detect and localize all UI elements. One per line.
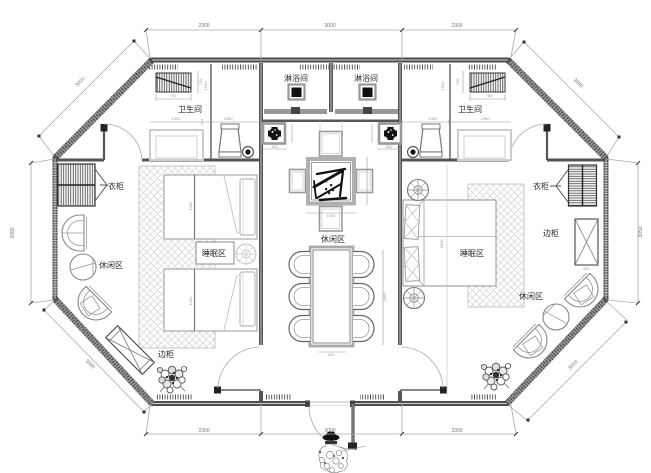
svg-text:600: 600: [272, 144, 279, 149]
svg-text:1500: 1500: [203, 81, 208, 91]
svg-text:卫生间: 卫生间: [458, 104, 482, 114]
svg-text:700: 700: [455, 78, 460, 85]
svg-text:1800: 1800: [382, 292, 387, 302]
svg-text:2300: 2300: [198, 428, 209, 434]
svg-text:3000: 3000: [324, 23, 335, 29]
svg-text:睡眠区: 睡眠区: [202, 249, 226, 258]
svg-text:3000: 3000: [324, 428, 335, 434]
svg-text:衣柜: 衣柜: [108, 181, 124, 191]
svg-text:1300: 1300: [481, 116, 491, 121]
svg-text:1300: 1300: [172, 116, 182, 121]
svg-text:淋浴间: 淋浴间: [354, 73, 378, 83]
svg-text:600: 600: [386, 144, 393, 149]
svg-text:睡眠区: 睡眠区: [460, 249, 484, 258]
svg-text:2300: 2300: [198, 23, 209, 29]
svg-text:边柜: 边柜: [543, 228, 559, 238]
svg-text:700: 700: [198, 78, 203, 85]
svg-text:1350: 1350: [429, 116, 439, 121]
svg-text:3050: 3050: [10, 227, 16, 238]
svg-text:1200: 1200: [188, 201, 193, 211]
svg-text:1000: 1000: [327, 213, 337, 218]
svg-text:600: 600: [328, 352, 335, 357]
svg-text:休闲区: 休闲区: [321, 234, 345, 244]
svg-text:2300: 2300: [451, 23, 462, 29]
svg-text:卫生间: 卫生间: [178, 104, 202, 114]
svg-text:3050: 3050: [638, 226, 644, 237]
svg-text:边柜: 边柜: [158, 349, 174, 359]
svg-text:1800: 1800: [439, 239, 444, 249]
svg-text:750: 750: [170, 93, 177, 98]
svg-text:休闲区: 休闲区: [519, 291, 543, 301]
svg-text:1200: 1200: [188, 296, 193, 306]
svg-text:750: 750: [486, 93, 493, 98]
svg-text:淋浴间: 淋浴间: [284, 73, 308, 83]
svg-text:休闲区: 休闲区: [99, 260, 123, 270]
svg-text:1350: 1350: [224, 116, 234, 121]
svg-text:1500: 1500: [440, 81, 445, 91]
svg-text:2300: 2300: [451, 428, 462, 434]
svg-text:400: 400: [583, 266, 590, 271]
svg-text:衣柜: 衣柜: [533, 181, 549, 191]
